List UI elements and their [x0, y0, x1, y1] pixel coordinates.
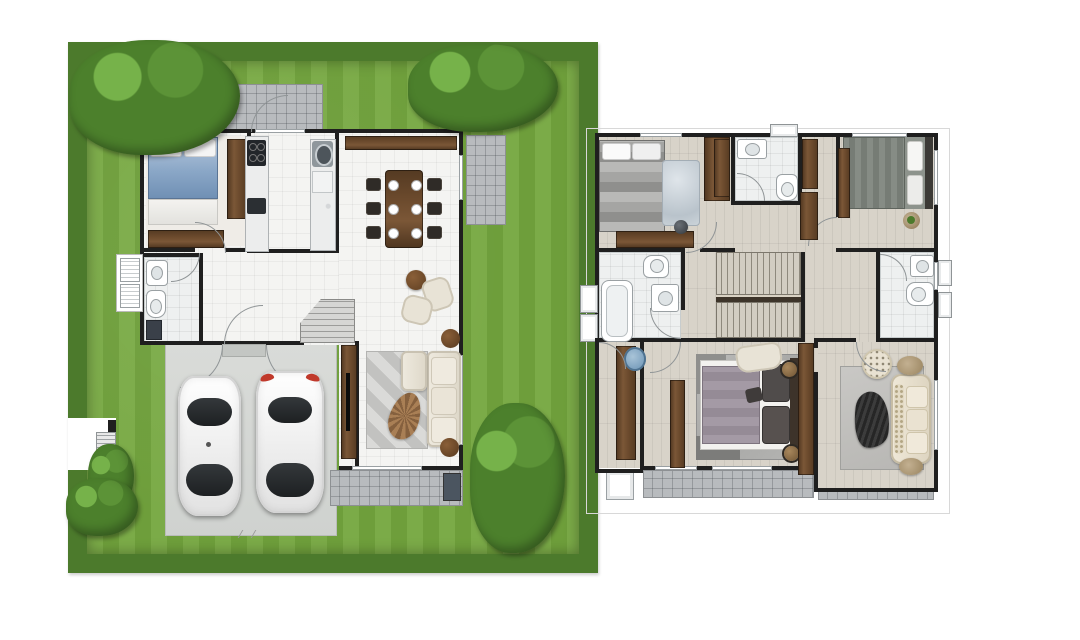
- wardrobe: [838, 148, 850, 218]
- wall: [886, 338, 938, 342]
- wall: [814, 488, 938, 492]
- wall: [712, 338, 805, 342]
- bed-blanket: [843, 137, 905, 209]
- pillow-dark: [762, 406, 790, 444]
- second-floor-plan: [0, 0, 1080, 640]
- toilet-bowl: [781, 182, 794, 197]
- vanity: [910, 255, 934, 277]
- pouf: [784, 446, 799, 461]
- dresser: [670, 380, 685, 468]
- window-box: [770, 124, 798, 137]
- window: [712, 466, 772, 470]
- stair-rail: [716, 295, 801, 302]
- pouf: [899, 458, 923, 475]
- cushion: [745, 386, 764, 403]
- stair-flight-upper: [716, 252, 801, 295]
- stair-flight-lower: [716, 302, 801, 338]
- window-box: [938, 292, 952, 318]
- balcony: [643, 470, 814, 498]
- hall-closet: [714, 139, 730, 197]
- window: [640, 133, 682, 137]
- headboard: [925, 137, 933, 209]
- plant-side-table: [903, 212, 920, 229]
- wall: [595, 469, 643, 473]
- toilet-bowl: [911, 287, 926, 302]
- basin-bowl: [745, 143, 760, 156]
- hall-closet: [800, 192, 818, 240]
- chesterfield-sofa: [891, 374, 931, 464]
- tufted-back: [894, 384, 904, 454]
- wall: [595, 248, 685, 252]
- basin-bowl: [658, 291, 673, 306]
- pillow: [907, 141, 923, 171]
- round-blue-chair: [624, 347, 646, 371]
- seat-cushion: [906, 432, 928, 454]
- toilet: [906, 282, 934, 306]
- pouf: [782, 362, 797, 377]
- bed-dark: [843, 137, 933, 209]
- pillow: [907, 175, 923, 205]
- tub-basin: [606, 285, 628, 337]
- toilet: [776, 174, 798, 201]
- window: [934, 150, 938, 205]
- wall: [818, 338, 856, 342]
- wall: [801, 252, 805, 342]
- wall: [814, 372, 818, 468]
- pillow: [602, 143, 631, 160]
- wall: [681, 252, 685, 310]
- window-box: [938, 260, 952, 286]
- plant: [907, 216, 915, 224]
- bed-blanket: [702, 366, 760, 444]
- seat-cushion: [906, 409, 928, 431]
- balcony-pad: [606, 471, 634, 500]
- wall: [680, 338, 716, 342]
- wall: [731, 133, 735, 205]
- window-box: [580, 285, 598, 313]
- window: [934, 380, 938, 450]
- pillow: [632, 143, 661, 160]
- pouf: [897, 356, 923, 375]
- bed-striped: [599, 140, 665, 232]
- bedroom-rug: [662, 160, 700, 226]
- toilet-bowl: [650, 259, 664, 273]
- wall: [733, 201, 800, 205]
- basin-bowl: [916, 260, 929, 273]
- floor-plans-canvas: [0, 0, 1080, 640]
- toilet: [643, 255, 669, 278]
- seat-cushion: [906, 386, 928, 408]
- wardrobe: [798, 343, 814, 475]
- vanity: [737, 139, 767, 159]
- wall: [836, 248, 938, 252]
- hall-closet: [802, 139, 818, 189]
- bathtub: [601, 280, 633, 342]
